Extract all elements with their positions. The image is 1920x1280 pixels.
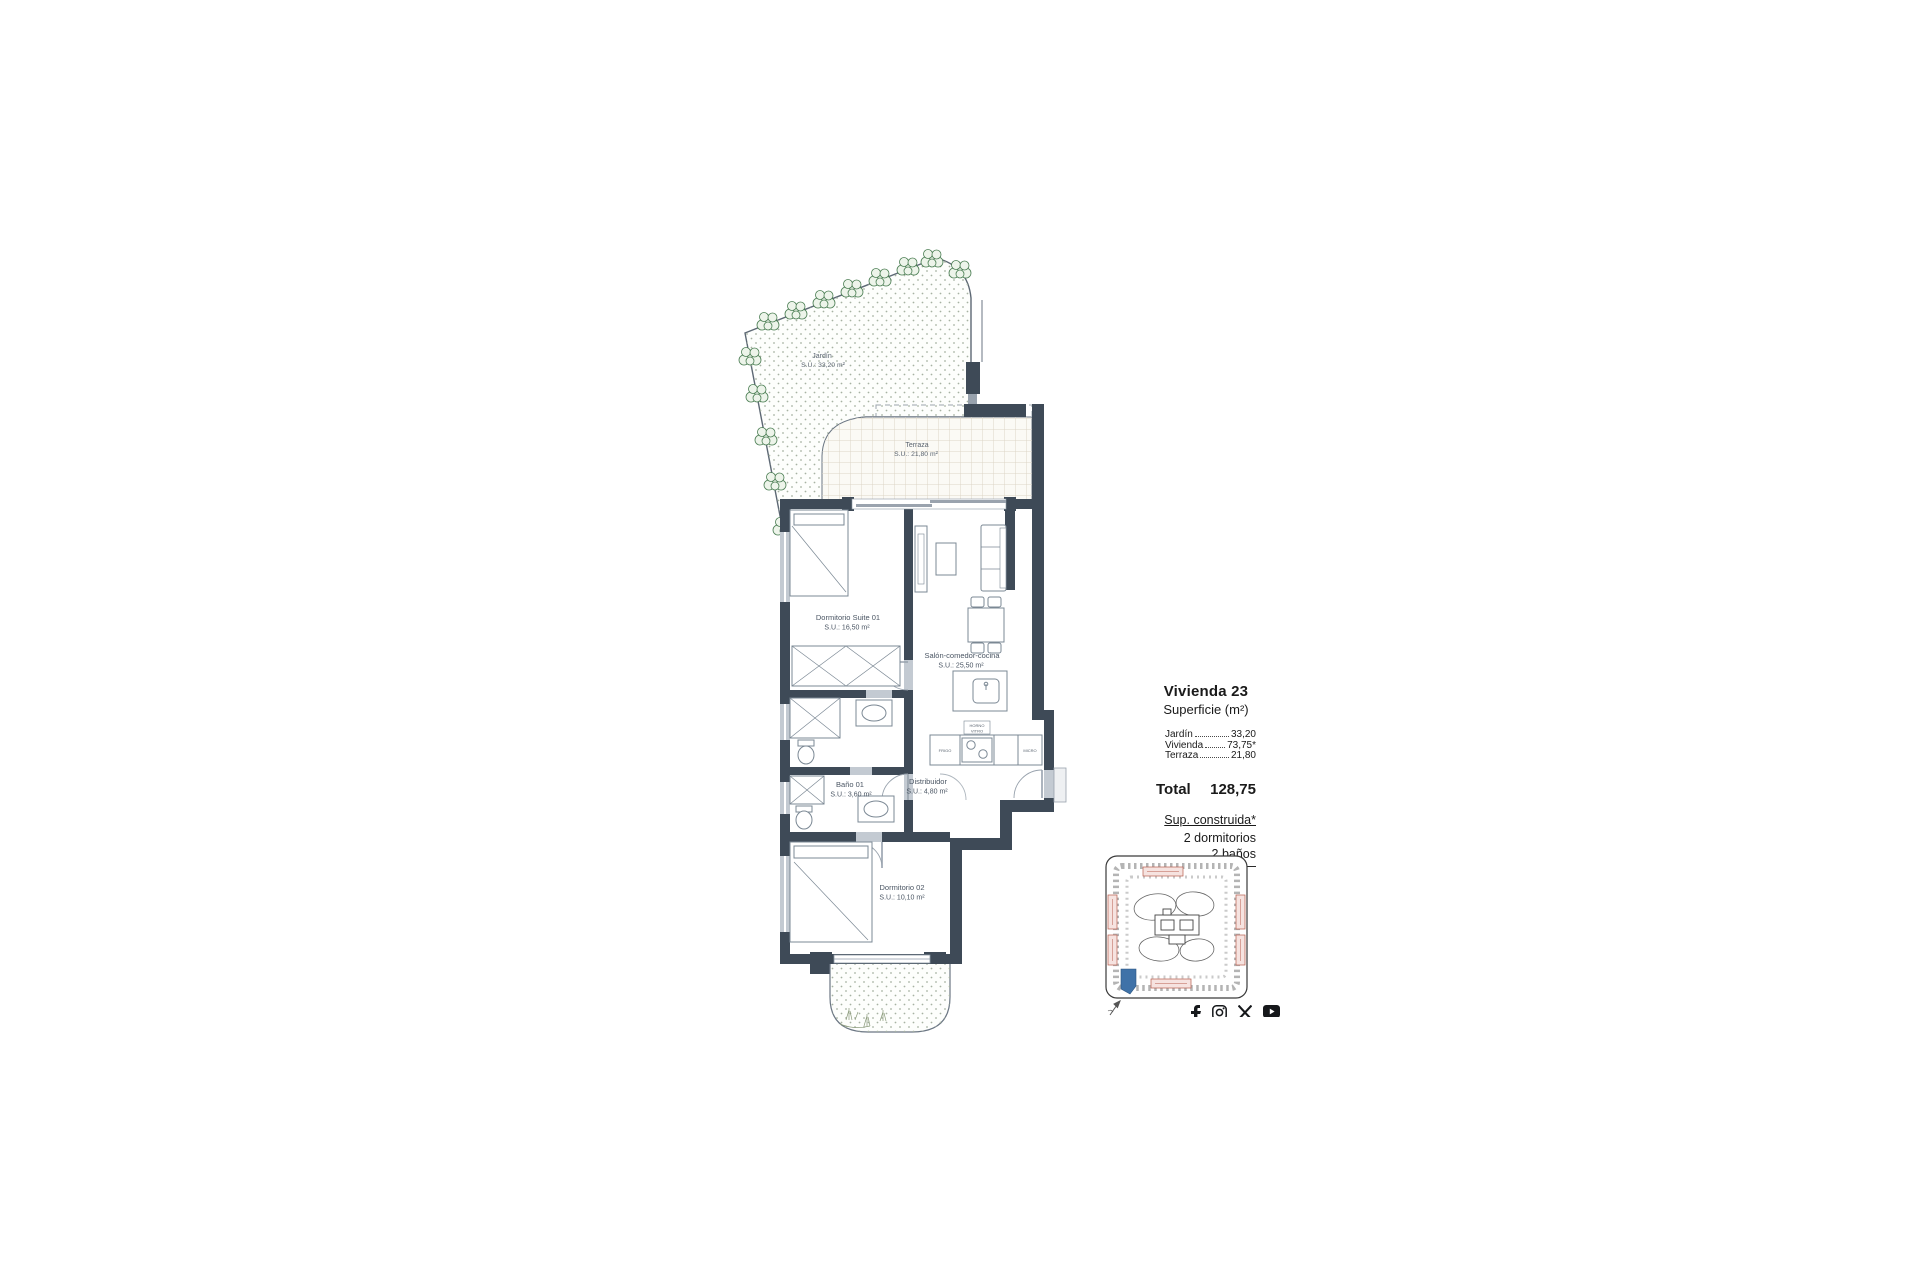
bedrooms-count: 2 dormitorios [1156, 831, 1256, 845]
north-arrow-icon [1108, 1001, 1120, 1015]
dotted-leader [1205, 747, 1225, 748]
row-value: 33,20 [1231, 730, 1256, 741]
bedroom2-bed [790, 842, 872, 942]
bottom-garden-bed [830, 964, 950, 1032]
total-value: 128,75 [1210, 781, 1256, 798]
svg-text:S.U.: 16,50 m²: S.U.: 16,50 m² [824, 625, 870, 632]
bath1-sink [858, 796, 894, 822]
surface-subtitle: Superficie (m²) [1156, 702, 1256, 717]
furniture [790, 510, 1042, 942]
svg-text:S.U.: 4,80 m²: S.U.: 4,80 m² [906, 789, 948, 796]
row-value: 21,80 [1231, 751, 1256, 762]
label-bano1: Baño 01 S.U.: 3,60 m² [830, 780, 872, 799]
svg-text:S.U.: 25,50 m²: S.U.: 25,50 m² [938, 663, 984, 670]
entry-step [1054, 768, 1066, 802]
entry-pillar [966, 362, 980, 394]
svg-text:S.U.: 3,60 m²: S.U.: 3,60 m² [830, 792, 872, 799]
suite-wardrobe [792, 646, 900, 686]
ensuite-toilet [798, 740, 814, 764]
label-dorm2: Dormitorio 02 S.U.: 10,10 m² [879, 883, 925, 902]
suite-bed [790, 510, 848, 596]
svg-text:Baño 01: Baño 01 [836, 780, 864, 789]
ensuite-shower [790, 698, 840, 738]
micro-label: MICRO [1023, 748, 1036, 753]
svg-text:Jardín: Jardín [812, 353, 832, 360]
row-label: Jardín [1165, 730, 1193, 741]
surface-rows: Jardín 33,20 Vivienda 73,75* Terraza 21,… [1156, 730, 1256, 762]
page: Jardín S.U.: 33,20 m² Terraza S.U.: 21,8… [0, 0, 1920, 1280]
svg-text:Distribuidor: Distribuidor [909, 777, 947, 786]
social-links [1191, 1005, 1280, 1017]
facebook-icon[interactable] [1191, 1005, 1201, 1017]
tv-unit [915, 526, 927, 592]
label-salon: Salón-comedor-cocina S.U.: 25,50 m² [924, 651, 1000, 670]
ensuite-sink [856, 700, 892, 726]
total-label: Total [1156, 781, 1191, 798]
svg-text:Dormitorio Suite 01: Dormitorio Suite 01 [816, 613, 880, 622]
svg-text:S.U.: 10,10 m²: S.U.: 10,10 m² [879, 895, 925, 902]
kitchen-island [953, 671, 1007, 711]
surface-row-terraza: Terraza 21,80 [1165, 751, 1256, 762]
svg-text:S.U.: 33,20 m²: S.U.: 33,20 m² [801, 362, 846, 369]
fridge-label: FRIGO [939, 748, 952, 753]
coffee-table [936, 543, 956, 575]
svg-text:Dormitorio 02: Dormitorio 02 [879, 883, 924, 892]
sofa [981, 525, 1006, 591]
info-panel: Vivienda 23 Superficie (m²) Jardín 33,20… [1156, 683, 1256, 867]
sliding-door [852, 499, 1006, 509]
bath1-toilet [796, 806, 812, 829]
x-icon[interactable] [1238, 1005, 1252, 1017]
kitchen-counter [930, 721, 1042, 765]
svg-text:Terraza: Terraza [905, 442, 928, 449]
dining-set [968, 597, 1004, 653]
dotted-leader [1195, 736, 1229, 737]
floor-plan: Jardín S.U.: 33,20 m² Terraza S.U.: 21,8… [718, 242, 1078, 1042]
site-plan [1103, 851, 1253, 1021]
svg-text:S.U.: 21,80 m²: S.U.: 21,80 m² [894, 451, 939, 458]
dotted-leader [1200, 757, 1229, 758]
bath1-shower [790, 776, 824, 804]
hob-label: VITRO [971, 729, 983, 734]
oven-label: HORNO [970, 723, 985, 728]
terrace-area: Terraza S.U.: 21,80 m² [822, 417, 1032, 505]
surface-row-jardin: Jardín 33,20 [1165, 730, 1256, 741]
instagram-icon[interactable] [1212, 1005, 1227, 1017]
label-suite: Dormitorio Suite 01 S.U.: 16,50 m² [816, 613, 880, 632]
total-row: Total 128,75 [1156, 781, 1256, 798]
built-surface-footnote: Sup. construida* [1156, 813, 1256, 827]
unit-title: Vivienda 23 [1156, 683, 1256, 700]
youtube-icon[interactable] [1263, 1005, 1280, 1017]
row-label: Terraza [1165, 751, 1198, 762]
svg-text:Salón-comedor-cocina: Salón-comedor-cocina [924, 651, 1000, 660]
